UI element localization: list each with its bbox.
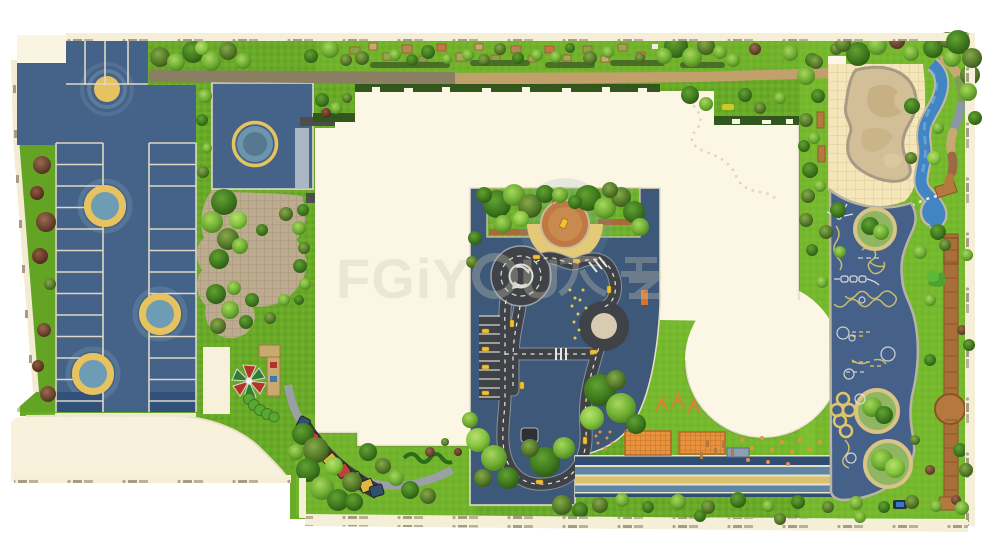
svg-text:U: U — [520, 247, 560, 310]
svg-text:FGiY: FGiY — [336, 247, 471, 310]
